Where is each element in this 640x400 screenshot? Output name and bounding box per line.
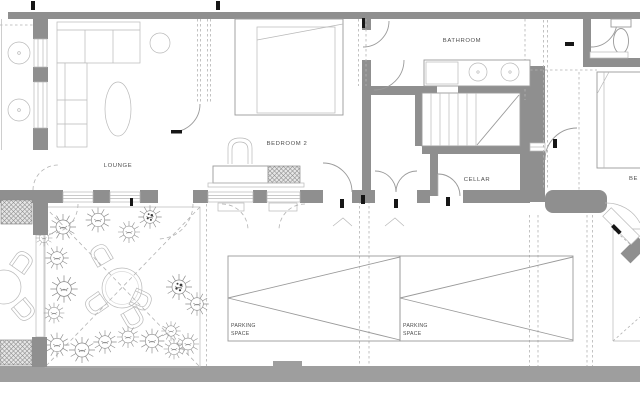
window — [208, 192, 253, 202]
bedroom2-furniture — [208, 19, 343, 187]
window — [530, 143, 545, 151]
chair-icon — [9, 249, 35, 275]
pouf — [150, 33, 170, 53]
lounge-furniture — [2, 19, 171, 150]
plant-icon — [50, 214, 76, 240]
shelf — [208, 183, 304, 187]
wc-shelf — [590, 52, 628, 58]
svg-text:PARKING: PARKING — [403, 323, 428, 329]
plant-icon — [177, 333, 199, 355]
plant-icon — [45, 246, 68, 269]
parking-area — [228, 196, 640, 366]
street-band — [0, 361, 640, 382]
toilet — [611, 19, 631, 54]
window-sill — [218, 203, 244, 211]
plant-icon — [164, 339, 185, 360]
window-sill — [269, 203, 297, 211]
parking-right-label: PARKING SPACE — [403, 323, 428, 337]
armchair — [228, 138, 252, 164]
plant-icon — [69, 337, 95, 363]
right-bedroom-partial — [597, 72, 640, 168]
staircase — [422, 93, 520, 146]
floor-plan-drawing: LOUNGE BEDROOM 2 BATHROOM CELLAR BE PARK… — [0, 0, 640, 400]
chair-icon — [88, 242, 113, 267]
cellar-label: CELLAR — [464, 177, 491, 183]
plant-icon — [166, 274, 192, 300]
plant-icon — [118, 221, 140, 243]
plant-icon — [93, 330, 116, 353]
plant-icon — [50, 275, 77, 302]
plant-icon — [44, 303, 65, 324]
window — [110, 192, 140, 202]
svg-text:SPACE: SPACE — [403, 331, 422, 337]
plant-icon — [86, 208, 111, 233]
cabinet — [213, 166, 268, 183]
bedroom-right-label-partial: BE — [629, 176, 638, 182]
plants — [36, 205, 209, 363]
coffee-table — [105, 82, 131, 136]
plant-icon — [161, 321, 181, 341]
bed — [597, 72, 640, 168]
window — [267, 192, 300, 202]
plant-icon — [117, 326, 139, 348]
plant-icon — [138, 205, 161, 228]
balcony-tables — [8, 42, 30, 121]
lounge-label: LOUNGE — [104, 163, 132, 169]
plant-icon — [140, 329, 165, 354]
bedroom2-label: BEDROOM 2 — [267, 141, 308, 147]
plant-icon — [45, 333, 70, 358]
bathroom-label: BATHROOM — [443, 38, 481, 44]
svg-text:PARKING: PARKING — [231, 323, 256, 329]
svg-text:SPACE: SPACE — [231, 331, 250, 337]
vanity — [424, 60, 530, 86]
window — [63, 192, 93, 202]
entrance-door-leaf — [603, 208, 640, 245]
chair-icon — [83, 291, 109, 317]
sofa — [57, 22, 140, 147]
garden-table-left — [0, 270, 21, 304]
chair-icon — [11, 297, 37, 323]
parking-left-label: PARKING SPACE — [231, 323, 256, 337]
window — [34, 39, 47, 67]
window — [34, 82, 47, 128]
plant-icon — [185, 292, 208, 315]
floor-plan-canvas: LOUNGE BEDROOM 2 BATHROOM CELLAR BE PARK… — [0, 0, 640, 400]
bed — [235, 19, 343, 115]
